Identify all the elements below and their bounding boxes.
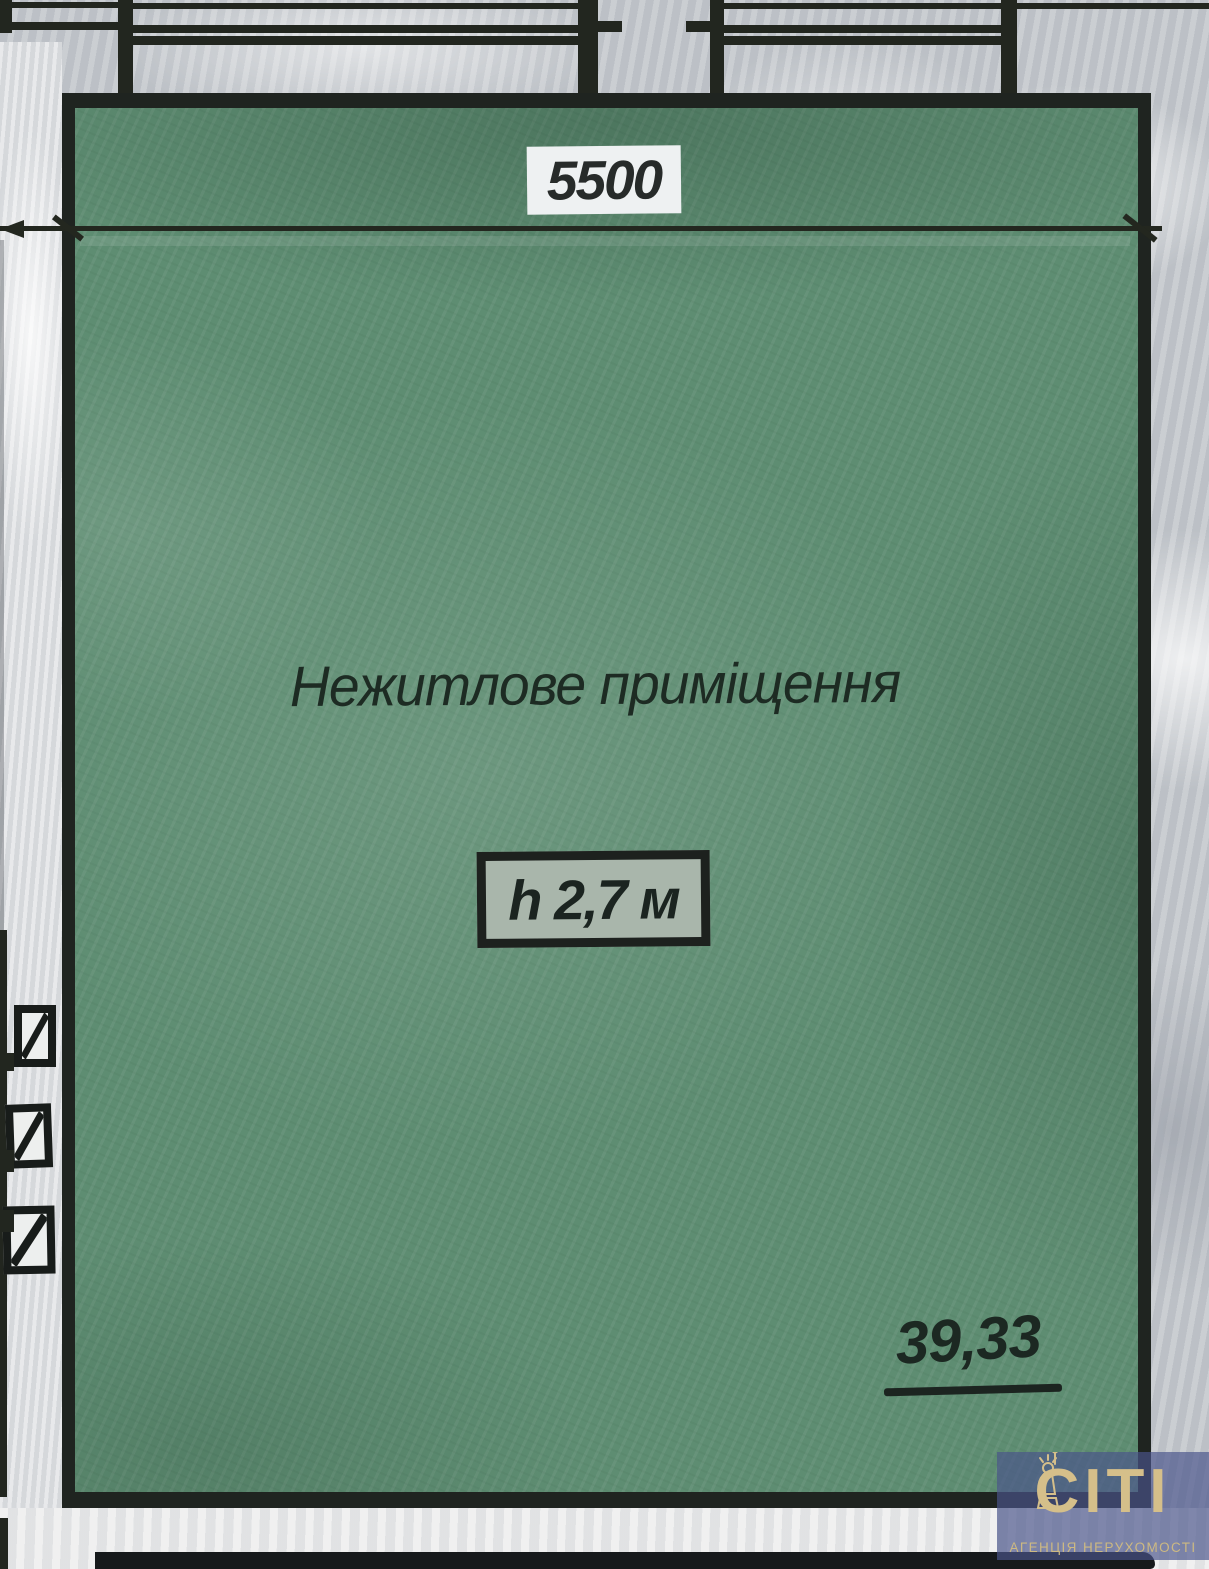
window-line <box>133 3 578 9</box>
wall-stub <box>0 1210 14 1232</box>
dimension-arrow <box>0 220 24 238</box>
agency-logo: СІТІ <box>997 1454 1209 1530</box>
wall-stub <box>686 21 710 32</box>
lower-wall-edge <box>95 1552 1155 1569</box>
wall-stub <box>598 21 622 32</box>
statue-icon <box>1031 1452 1065 1516</box>
wall-stub <box>0 1053 14 1071</box>
agency-caption: АГЕНЦІЯ НЕРУХОМОСТІ <box>997 1540 1209 1555</box>
wall-line <box>0 2 118 8</box>
scan-glare <box>80 236 1130 246</box>
corridor-strip <box>0 42 62 1508</box>
wall-line <box>0 22 118 30</box>
window-line <box>724 36 1001 45</box>
window-line <box>724 3 1209 9</box>
page-edge-line <box>0 1518 8 1569</box>
area-value: 39,33 <box>866 1293 1070 1385</box>
page-edge-line <box>0 240 4 940</box>
window-line <box>133 25 578 33</box>
room-name-label: Нежитлове приміщення <box>192 639 998 731</box>
wall-stub <box>0 1150 14 1172</box>
dimension-label: 5500 <box>527 145 682 215</box>
wall-pier <box>578 0 598 95</box>
wall-pier <box>1001 0 1017 93</box>
window-line <box>724 25 1001 33</box>
ceiling-height-box: h 2,7 м <box>477 850 711 948</box>
dimension-line <box>0 226 1162 231</box>
floorplan-scan: 5500 Нежитлове приміщення h 2,7 м 39,33 … <box>0 0 1209 1569</box>
wall-pier <box>118 0 133 97</box>
agency-watermark: СІТІ АГЕНЦІЯ НЕРУХОМОСТІ <box>997 1452 1209 1560</box>
vent-shaft-icon <box>14 1005 56 1067</box>
window-line <box>133 36 578 45</box>
wall-pier <box>710 0 724 95</box>
room-outline <box>62 93 1151 1508</box>
